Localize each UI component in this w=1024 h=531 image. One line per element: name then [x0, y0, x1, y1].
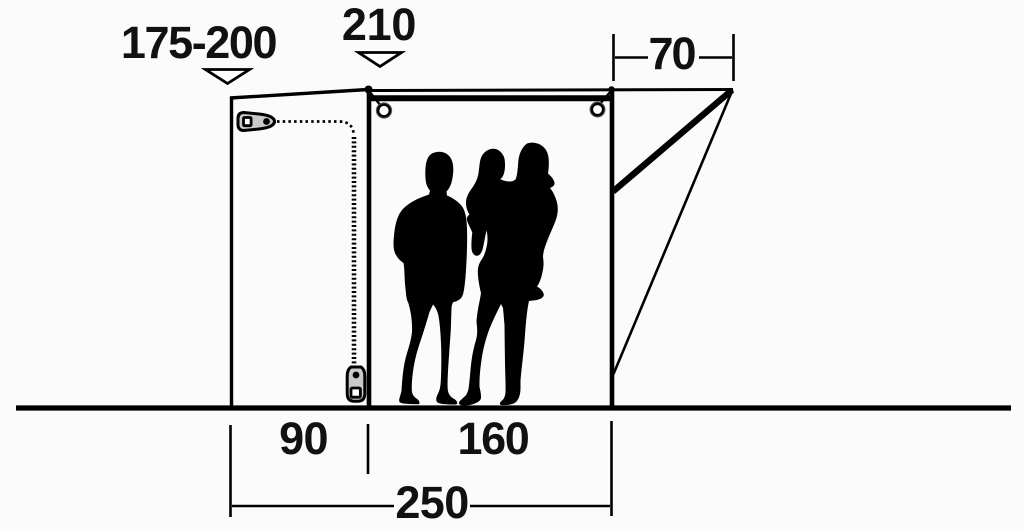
svg-text:70: 70	[648, 28, 695, 79]
svg-text:175-200: 175-200	[121, 17, 277, 68]
svg-text:210: 210	[342, 0, 416, 50]
svg-text:250: 250	[395, 477, 468, 528]
svg-text:160: 160	[458, 413, 529, 464]
svg-text:90: 90	[279, 413, 328, 464]
